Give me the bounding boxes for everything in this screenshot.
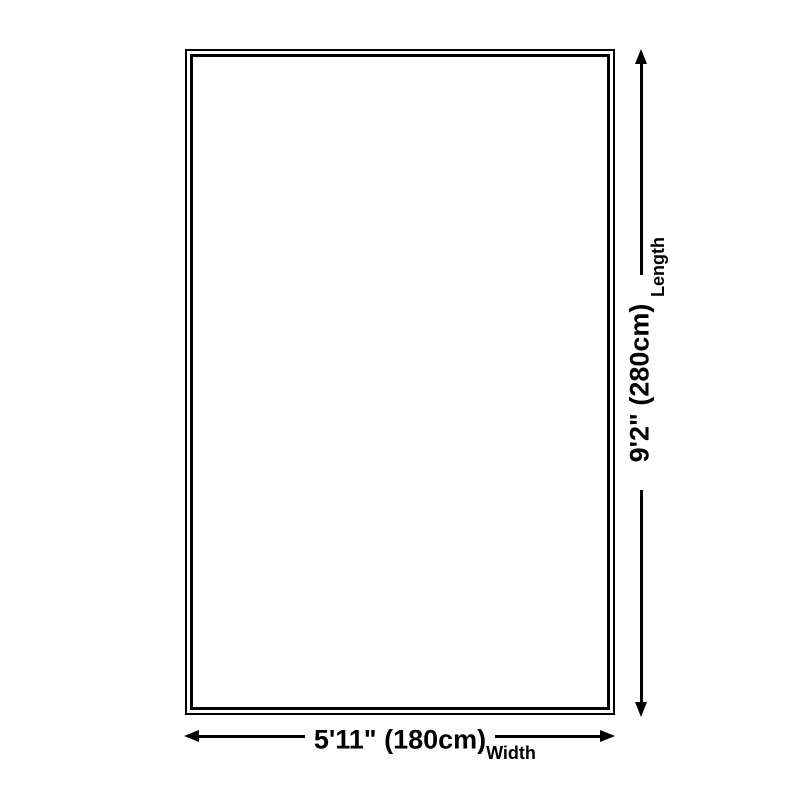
arrow-right-icon bbox=[600, 730, 615, 742]
width-arrow-line-left bbox=[197, 735, 305, 738]
rug-outline-outer bbox=[185, 49, 615, 715]
length-axis-label: Length bbox=[649, 237, 667, 297]
width-dimension-value: 5'11" (180cm) bbox=[314, 727, 486, 754]
length-arrow-line-bottom bbox=[640, 490, 643, 704]
width-axis-label: Width bbox=[486, 744, 536, 762]
width-arrow-line-right bbox=[495, 735, 602, 738]
length-arrow-line-top bbox=[640, 62, 643, 275]
rug-outline-inner bbox=[190, 54, 610, 710]
rug-size-diagram: Length 9'2" (280cm) 5'11" (180cm) Width bbox=[0, 0, 800, 800]
arrow-down-icon bbox=[635, 702, 647, 717]
length-dimension-value: 9'2" (280cm) bbox=[627, 304, 654, 463]
